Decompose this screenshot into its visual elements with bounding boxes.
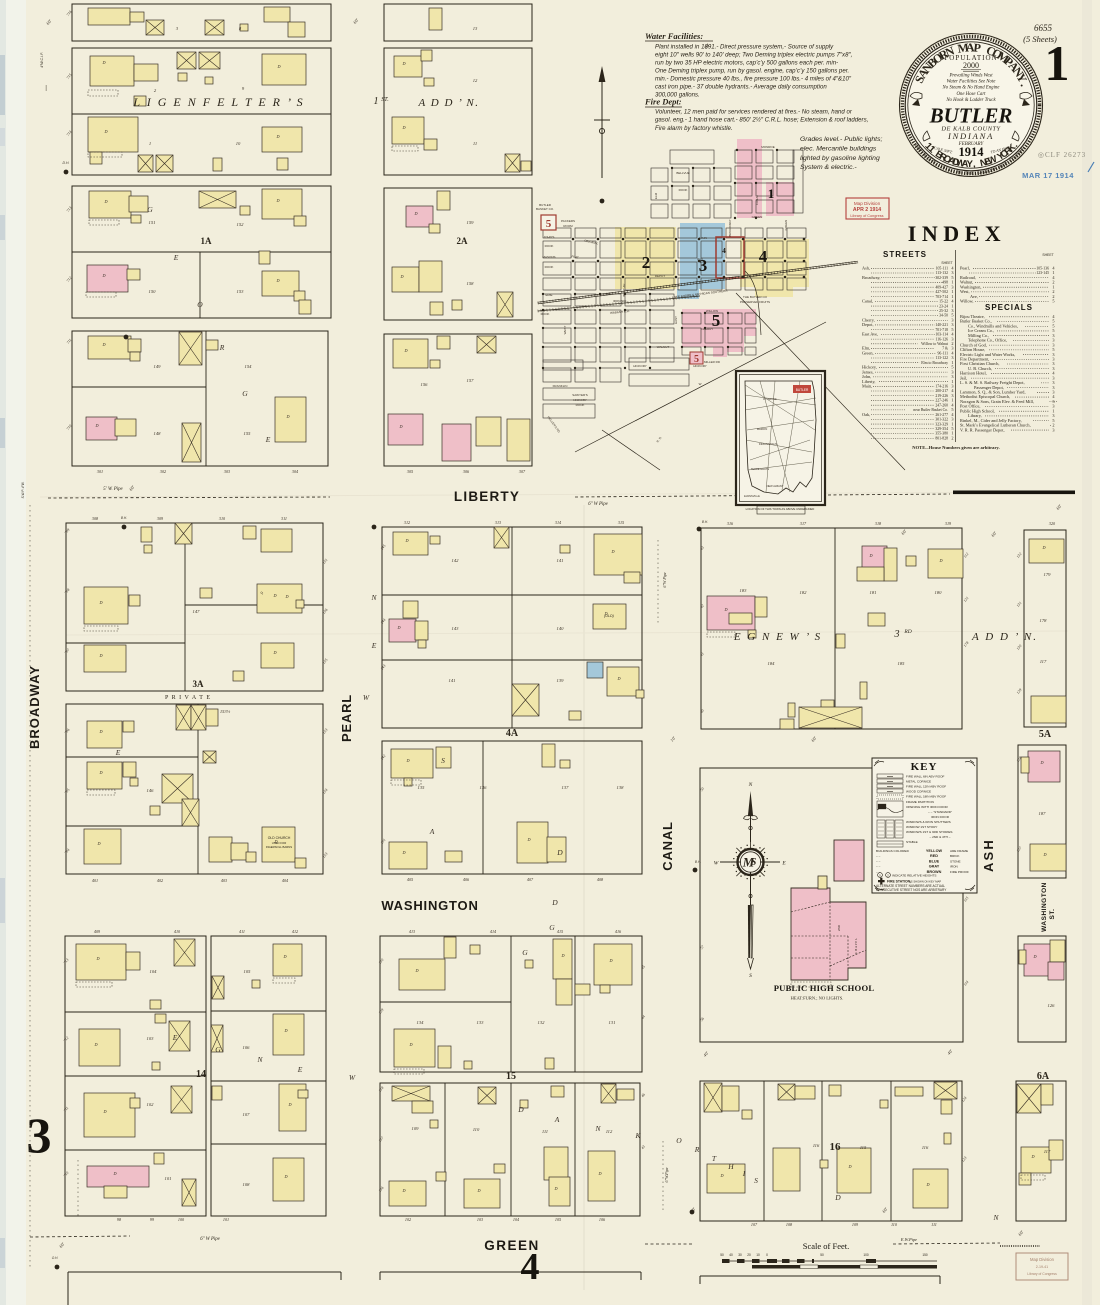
svg-text:134: 134 [417,1020,425,1025]
svg-text:136: 136 [480,785,488,790]
svg-text:E: E [297,1065,303,1074]
svg-text:108: 108 [786,1222,793,1227]
svg-text:S: S [441,756,445,765]
svg-text:RD: RD [903,629,911,635]
svg-text:3: 3 [1052,427,1054,432]
svg-text:TERRE HAUTE: TERRE HAUTE [751,467,770,471]
svg-text:– – “STANDARD”: – – “STANDARD” [928,810,952,814]
svg-text:H: H [727,1162,734,1171]
svg-text:KEY: KEY [911,761,938,773]
svg-text:BROADWAY: BROADWAY [728,219,732,236]
svg-text:D: D [401,125,405,130]
svg-text:E: E [173,253,179,262]
svg-text:EAST: EAST [674,316,678,324]
svg-text:Fire alarm by factory whistle.: Fire alarm by factory whistle. [655,125,733,132]
svg-text:LIBERTY: LIBERTY [454,489,520,504]
svg-text:157: 157 [467,378,475,383]
svg-text:152: 152 [237,222,245,227]
svg-text:D: D [597,1171,601,1176]
svg-text:STONE: STONE [950,859,961,863]
svg-text:INDEX: INDEX [908,221,1006,246]
svg-text:One Hose Cart: One Hose Cart [956,92,986,97]
svg-text:401: 401 [92,878,98,883]
svg-text:107: 107 [243,1112,251,1117]
svg-text:303: 303 [224,469,230,474]
svg-text:near Butler Basket Co.: near Butler Basket Co. [913,408,948,412]
svg-text:No Steam & No Hand Engine: No Steam & No Hand Engine [942,86,1001,91]
svg-text:– –: – – [876,859,881,863]
svg-text:S: S [749,973,752,979]
svg-text:184: 184 [768,661,776,666]
svg-text:One Deming triplex pump, run b: One Deming triplex pump, run by gasol. e… [655,68,849,75]
svg-text:(5 Sheets): (5 Sheets) [1023,34,1057,44]
svg-text:D: D [610,549,614,554]
svg-text:D: D [276,64,280,69]
svg-text:STABLE: STABLE [906,840,918,844]
svg-text:P R I V A T E: P R I V A T E [165,695,211,701]
svg-text:THE BUTLER CO: THE BUTLER CO [743,295,768,299]
svg-text:178: 178 [1040,618,1048,623]
svg-text:D: D [401,850,405,855]
svg-text:5: 5 [1052,299,1054,304]
svg-text:NOTE.–House Numbers given are: NOTE.–House Numbers given are arbitrary. [912,445,999,450]
svg-text:▬▬▬: ▬▬▬ [887,791,893,793]
svg-text:D: D [94,423,98,428]
svg-text:I: I [742,1169,746,1178]
svg-text:G: G [147,205,153,214]
svg-text:D: D [526,837,530,842]
svg-text:N: N [992,1213,999,1222]
svg-text:WALNUT: WALNUT [657,345,670,349]
svg-text:11: 11 [473,141,477,146]
svg-text:D: D [285,414,289,419]
svg-text:104: 104 [150,969,158,974]
svg-text:D: D [551,898,558,907]
svg-text:154: 154 [245,364,253,369]
svg-text:409: 409 [94,929,101,934]
svg-text:MARION: MARION [757,427,768,431]
svg-text:311: 311 [281,516,287,521]
svg-text:FT. WAYNE: FT. WAYNE [763,397,777,401]
svg-text:158: 158 [467,281,475,286]
svg-text:100: 100 [863,1253,869,1257]
svg-text:◎CLF 26273: ◎CLF 26273 [1038,151,1086,159]
svg-text:System & electric.-: System & electric.- [800,164,857,171]
svg-text:D: D [275,198,279,203]
svg-text:CANAL: CANAL [660,821,675,871]
svg-text:105: 105 [555,1217,561,1222]
svg-text:1: 1 [768,186,775,201]
svg-text:101: 101 [165,1176,172,1181]
svg-text:113-122: 113-122 [935,356,948,360]
svg-text:PEARL: PEARL [339,694,354,742]
svg-text:50: 50 [820,1253,824,1257]
svg-text:– 2ND & 4TH –: – 2ND & 4TH – [930,835,951,839]
svg-text:316: 316 [727,521,734,526]
svg-text:ASH: ASH [981,838,996,872]
svg-text:320: 320 [1049,521,1056,526]
svg-text:E: E [781,861,786,867]
svg-text:E.W.Pipe: E.W.Pipe [900,1237,917,1242]
svg-text:402: 402 [157,878,163,883]
svg-text:D: D [272,650,276,655]
svg-text:40: 40 [729,1253,733,1257]
svg-text:ROOK: ROOK [541,312,550,316]
svg-text:23-24: 23-24 [939,304,948,308]
svg-text:D: D [476,1188,480,1193]
svg-text:313: 313 [495,520,501,525]
svg-text:run by two 35 HP electric moto: run by two 35 HP electric motors, cap’c’… [655,60,838,67]
svg-text:D: D [102,1109,106,1114]
svg-text:D: D [616,676,620,681]
svg-text:153: 153 [237,289,245,294]
svg-text:cast iron pipe.- 37 double hyd: cast iron pipe.- 37 double hydrants.- Av… [655,84,827,91]
svg-text:N: N [370,593,377,602]
svg-text:D: D [283,1028,287,1033]
svg-text:155: 155 [244,431,252,436]
svg-text:Prevailing Winds West: Prevailing Winds West [948,74,993,79]
svg-text:WOOD CORNICE: WOOD CORNICE [906,790,931,794]
svg-text:S: S [754,1176,758,1185]
svg-text:Map Division: Map Division [1030,1257,1055,1262]
svg-text:185: 185 [898,661,906,666]
svg-text:148: 148 [154,431,162,436]
svg-text:E: E [971,170,974,175]
svg-text:AS SHOWN ON KEY MAP: AS SHOWN ON KEY MAP [909,880,941,884]
svg-text:405: 405 [407,877,413,882]
svg-text:ROOM: ROOM [563,224,573,228]
svg-text:112: 112 [606,1129,613,1134]
svg-text:182: 182 [800,590,808,595]
svg-text:JOHN'S: JOHN'S [544,235,555,239]
svg-text:102: 102 [405,1217,411,1222]
svg-text:FRANKLIN: FRANKLIN [553,384,568,388]
svg-text:D: D [413,211,417,216]
svg-text:IRON DOOR: IRON DOOR [931,815,950,819]
svg-text:111: 111 [931,1222,937,1227]
svg-text:O: O [676,1136,682,1145]
svg-text:414: 414 [490,929,496,934]
svg-text:102: 102 [147,1102,155,1107]
svg-text:D: D [723,607,727,612]
svg-text:PACKERS: PACKERS [561,219,575,223]
svg-text:G: G [549,923,555,932]
svg-text:D: D [925,1182,929,1187]
svg-text:DEPOT: DEPOT [655,274,666,278]
svg-text:Water Facilities See Note: Water Facilities See Note [947,80,997,85]
svg-text:D: D [403,348,407,353]
svg-text:318: 318 [875,521,882,526]
svg-text:146: 146 [147,788,155,793]
svg-text:BUILDINGS COLORED: BUILDINGS COLORED [876,849,910,853]
svg-text:105: 105 [244,969,252,974]
svg-text:109: 109 [412,1126,420,1131]
svg-text:D: D [101,273,105,278]
svg-text:16: 16 [830,1141,842,1153]
svg-text:34-50: 34-50 [939,314,948,318]
svg-text:RED: RED [930,854,938,858]
svg-text:D: D [98,770,102,775]
svg-text:103-114: 103-114 [935,333,948,337]
svg-text:D: D [112,1171,116,1176]
svg-text:S.W.P. 4″W.: S.W.P. 4″W. [21,481,25,498]
svg-text:106: 106 [243,1045,251,1050]
svg-text:OPENING WITH IRON DOOR: OPENING WITH IRON DOOR [906,805,949,809]
svg-text:O: O [197,300,203,309]
svg-text:159: 159 [467,220,475,225]
svg-text:METAL CORNICE: METAL CORNICE [906,780,931,784]
svg-text:404: 404 [282,878,288,883]
svg-text:138: 138 [617,785,625,790]
svg-text:329-354: 329-354 [935,427,948,431]
svg-text:ST.: ST. [1049,909,1056,920]
svg-text:lighted by gasoline lighting: lighted by gasoline lighting [800,155,880,162]
svg-text:B.H.: B.H. [695,860,701,864]
svg-text:A D D ’ N.: A D D ’ N. [418,97,480,109]
svg-text:INDIANA: INDIANA [947,131,994,141]
svg-text:gasol. eng.- 1 hand hose cart.: gasol. eng.- 1 hand hose cart.- 850′ 2½″… [655,117,868,124]
svg-text:6″ W Pipe: 6″ W Pipe [588,502,608,507]
svg-text:MASONS: MASONS [542,255,555,259]
svg-text:410: 410 [174,929,181,934]
svg-text:A D D ’ N.: A D D ’ N. [971,631,1038,643]
svg-text:139: 139 [557,678,565,683]
svg-text:D: D [275,278,279,283]
svg-text:14: 14 [196,1069,206,1080]
svg-text:141: 141 [557,558,564,563]
svg-text:1A: 1A [201,236,213,246]
svg-text:Grades level.- Public lights;: Grades level.- Public lights; [800,136,882,143]
svg-text:FIRE PROOF: FIRE PROOF [950,870,969,874]
svg-text:703-714: 703-714 [935,295,948,299]
svg-text:181: 181 [870,590,877,595]
svg-text:412: 412 [292,929,298,934]
svg-text:OLD CHURCH: OLD CHURCH [268,836,291,840]
svg-text:183: 183 [740,588,748,593]
svg-text:D: D [1039,760,1043,765]
svg-text:103: 103 [147,1036,155,1041]
svg-text:G: G [242,389,248,398]
svg-text:109: 109 [852,1222,859,1227]
svg-text:D: D [405,758,409,763]
svg-text:107: 107 [751,1222,758,1227]
svg-text:E G N E W ’ S: E G N E W ’ S [733,631,822,643]
svg-text:D: D [282,954,286,959]
svg-text:INGERSOLL BARNS: INGERSOLL BARNS [266,845,292,849]
svg-text:D: D [1030,1154,1034,1159]
svg-text:5′ W. Pipe: 5′ W. Pipe [103,487,123,492]
svg-text:5: 5 [546,218,552,230]
svg-text:12: 12 [473,78,478,83]
svg-text:187: 187 [1039,811,1047,816]
svg-text:116: 116 [922,1145,929,1150]
svg-text:FRAME PARTITION: FRAME PARTITION [906,800,934,804]
svg-text:323-329: 323-329 [935,422,948,426]
svg-text:▬▬▬: ▬▬▬ [887,781,893,783]
svg-text:4″W.C.I.P.: 4″W.C.I.P. [40,52,44,68]
svg-text:3: 3 [894,629,900,640]
svg-text:GRAY: GRAY [929,865,940,869]
svg-text:4: 4 [521,1246,540,1288]
svg-text:D: D [399,274,403,279]
svg-text:MONROE: MONROE [761,145,775,149]
svg-text:150: 150 [149,289,157,294]
svg-text:30: 30 [738,1253,742,1257]
svg-text:15: 15 [506,1071,516,1082]
svg-text:D: D [719,1173,723,1178]
svg-text:301-322: 301-322 [935,418,948,422]
svg-text:305: 305 [407,469,413,474]
svg-text:132: 132 [538,1020,546,1025]
svg-text:D: D [834,1193,841,1202]
svg-text:4A: 4A [506,728,519,739]
svg-text:6″ W Pipe: 6″ W Pipe [200,1237,220,1242]
svg-text:INDIANAPOLIS: INDIANAPOLIS [759,442,777,446]
svg-text:Water Facilities:: Water Facilities: [645,31,703,41]
svg-text:3: 3 [699,256,708,275]
svg-text:310: 310 [219,516,226,521]
svg-text:HICKORY: HICKORY [633,364,647,368]
svg-text:302-339: 302-339 [935,276,948,280]
svg-text:elec. Mercantile buildings: elec. Mercantile buildings [800,145,877,152]
svg-text:2ND: 2ND [837,924,841,931]
svg-text:R: R [694,1145,700,1154]
svg-text:3A: 3A [193,679,205,689]
svg-text:IRON SID.: IRON SID. [613,299,627,303]
svg-text:D: D [1041,545,1045,550]
svg-text:FIRE WALL 6IN ABV ROOF: FIRE WALL 6IN ABV ROOF [906,775,945,779]
svg-text:ROOK: ROOK [545,244,554,248]
svg-text:D: D [408,1042,412,1047]
svg-text:E: E [371,641,377,650]
svg-text:D: D [98,729,102,734]
svg-text:ELM: ELM [654,192,658,199]
svg-text:4: 4 [759,247,768,266]
svg-text:179: 179 [1044,572,1052,577]
svg-text:E: E [115,748,121,757]
svg-text:P: P [973,40,982,55]
svg-text:306: 306 [463,469,470,474]
svg-text:302: 302 [160,469,166,474]
svg-text:312: 312 [404,520,410,525]
svg-text:ERIE: ERIE [545,293,552,297]
svg-text:141: 141 [449,678,456,683]
svg-text:D: D [96,841,100,846]
svg-text:133: 133 [477,1020,485,1025]
svg-text:123-145: 123-145 [1036,271,1049,275]
svg-text:ROOK: ROOK [545,265,554,269]
svg-text:K: K [634,1131,641,1140]
svg-text:20: 20 [747,1253,751,1257]
svg-text:Plant installed in 1891.- Dire: Plant installed in 1891.- Direct pressur… [655,44,834,51]
svg-text:B.H.: B.H. [702,520,708,524]
svg-text:Fire Dept:: Fire Dept: [644,97,682,107]
svg-text:D: D [103,199,107,204]
svg-text:135: 135 [418,785,426,790]
svg-text:D: D [414,968,418,973]
svg-text:105-111: 105-111 [936,267,948,271]
svg-text:BLUE: BLUE [929,859,940,863]
svg-text:E: E [265,435,271,444]
svg-text:156: 156 [421,382,429,387]
svg-text:2000: 2000 [963,61,979,70]
svg-text:143: 143 [452,626,460,631]
svg-text:Elm to Broadway: Elm to Broadway [921,361,948,365]
svg-text:HEAT:FURN.; NO LIGHTS.: HEAT:FURN.; NO LIGHTS. [791,996,844,1001]
svg-text:317: 317 [800,521,807,526]
svg-text:140-221: 140-221 [935,323,948,327]
svg-text:801-828: 801-828 [935,436,948,440]
svg-text:W: W [349,1073,356,1082]
svg-text:D: D [401,1188,405,1193]
svg-text:111: 111 [542,1129,548,1134]
svg-text:5: 5 [694,354,699,365]
svg-text:D: D [275,134,279,139]
svg-text:308: 308 [92,516,99,521]
svg-text:416: 416 [615,929,622,934]
svg-text:WASHINGTON: WASHINGTON [1041,882,1048,932]
svg-text:(OLD): (OLD) [604,614,614,618]
svg-text:ROOK: ROOK [679,188,688,192]
svg-text:104: 104 [513,1217,519,1222]
svg-text:D: D [1032,954,1036,959]
svg-text:LOCATION OF THIS TOWN AS ABOVE: LOCATION OF THIS TOWN AS ABOVE UNDERLINE… [746,507,815,511]
svg-text:13: 13 [473,26,478,31]
svg-text:261-277: 261-277 [935,413,948,417]
svg-text:D: D [398,424,402,429]
svg-text:IRON: IRON [950,865,958,869]
svg-text:MAIN: MAIN [699,236,707,240]
svg-text:D: D [98,600,102,605]
svg-text:7 &: 7 & [942,347,948,351]
svg-text:INDICATE RELATIVE HEIGHTS: INDICATE RELATIVE HEIGHTS [892,874,936,878]
svg-text:Library of Congress: Library of Congress [850,214,883,218]
svg-text:314: 314 [555,520,561,525]
svg-text:N: N [256,1055,263,1064]
svg-text:25-32: 25-32 [939,309,948,313]
svg-text:eight 10″ wells 90′ to 140′ de: eight 10″ wells 90′ to 140′ deep; Two De… [655,52,852,59]
svg-text:BUTLER: BUTLER [929,104,1013,128]
svg-text:B.H.: B.H. [121,516,127,520]
svg-text:O.H.: O.H. [52,1256,59,1260]
svg-text:Scale of Feet.: Scale of Feet. [803,1241,850,1251]
svg-text:BASKET CO.: BASKET CO. [536,207,554,211]
svg-text:427-502: 427-502 [935,290,948,294]
svg-text:HICKORY: HICKORY [573,398,587,402]
svg-text:▬▬▬: ▬▬▬ [887,786,893,788]
svg-text:D: D [287,1102,291,1107]
svg-text:SAWYER'S: SAWYER'S [572,393,587,397]
svg-text:WINDOW 1ST STORY: WINDOW 1ST STORY [906,825,937,829]
svg-text:2: 2 [642,253,651,272]
svg-text:No Hook & Ladder Truck: No Hook & Ladder Truck [945,98,996,103]
svg-text:G: G [522,948,528,957]
svg-text:D: D [101,60,105,65]
svg-text:315: 315 [618,520,624,525]
svg-text:113-132: 113-132 [935,271,948,275]
svg-text:A: A [554,1115,560,1124]
svg-text:110: 110 [891,1222,898,1227]
svg-text:15-22: 15-22 [939,300,948,304]
svg-text:NEW ALBANY: NEW ALBANY [767,484,784,488]
svg-text:GREEN: GREEN [784,220,788,231]
svg-text:4: 4 [722,247,726,255]
svg-text:D: D [517,1105,524,1114]
svg-text:WEST: WEST [563,326,567,335]
svg-text:219-226: 219-226 [935,394,948,398]
svg-text:D: D [396,625,400,630]
svg-text:SHEET: SHEET [1042,253,1053,257]
